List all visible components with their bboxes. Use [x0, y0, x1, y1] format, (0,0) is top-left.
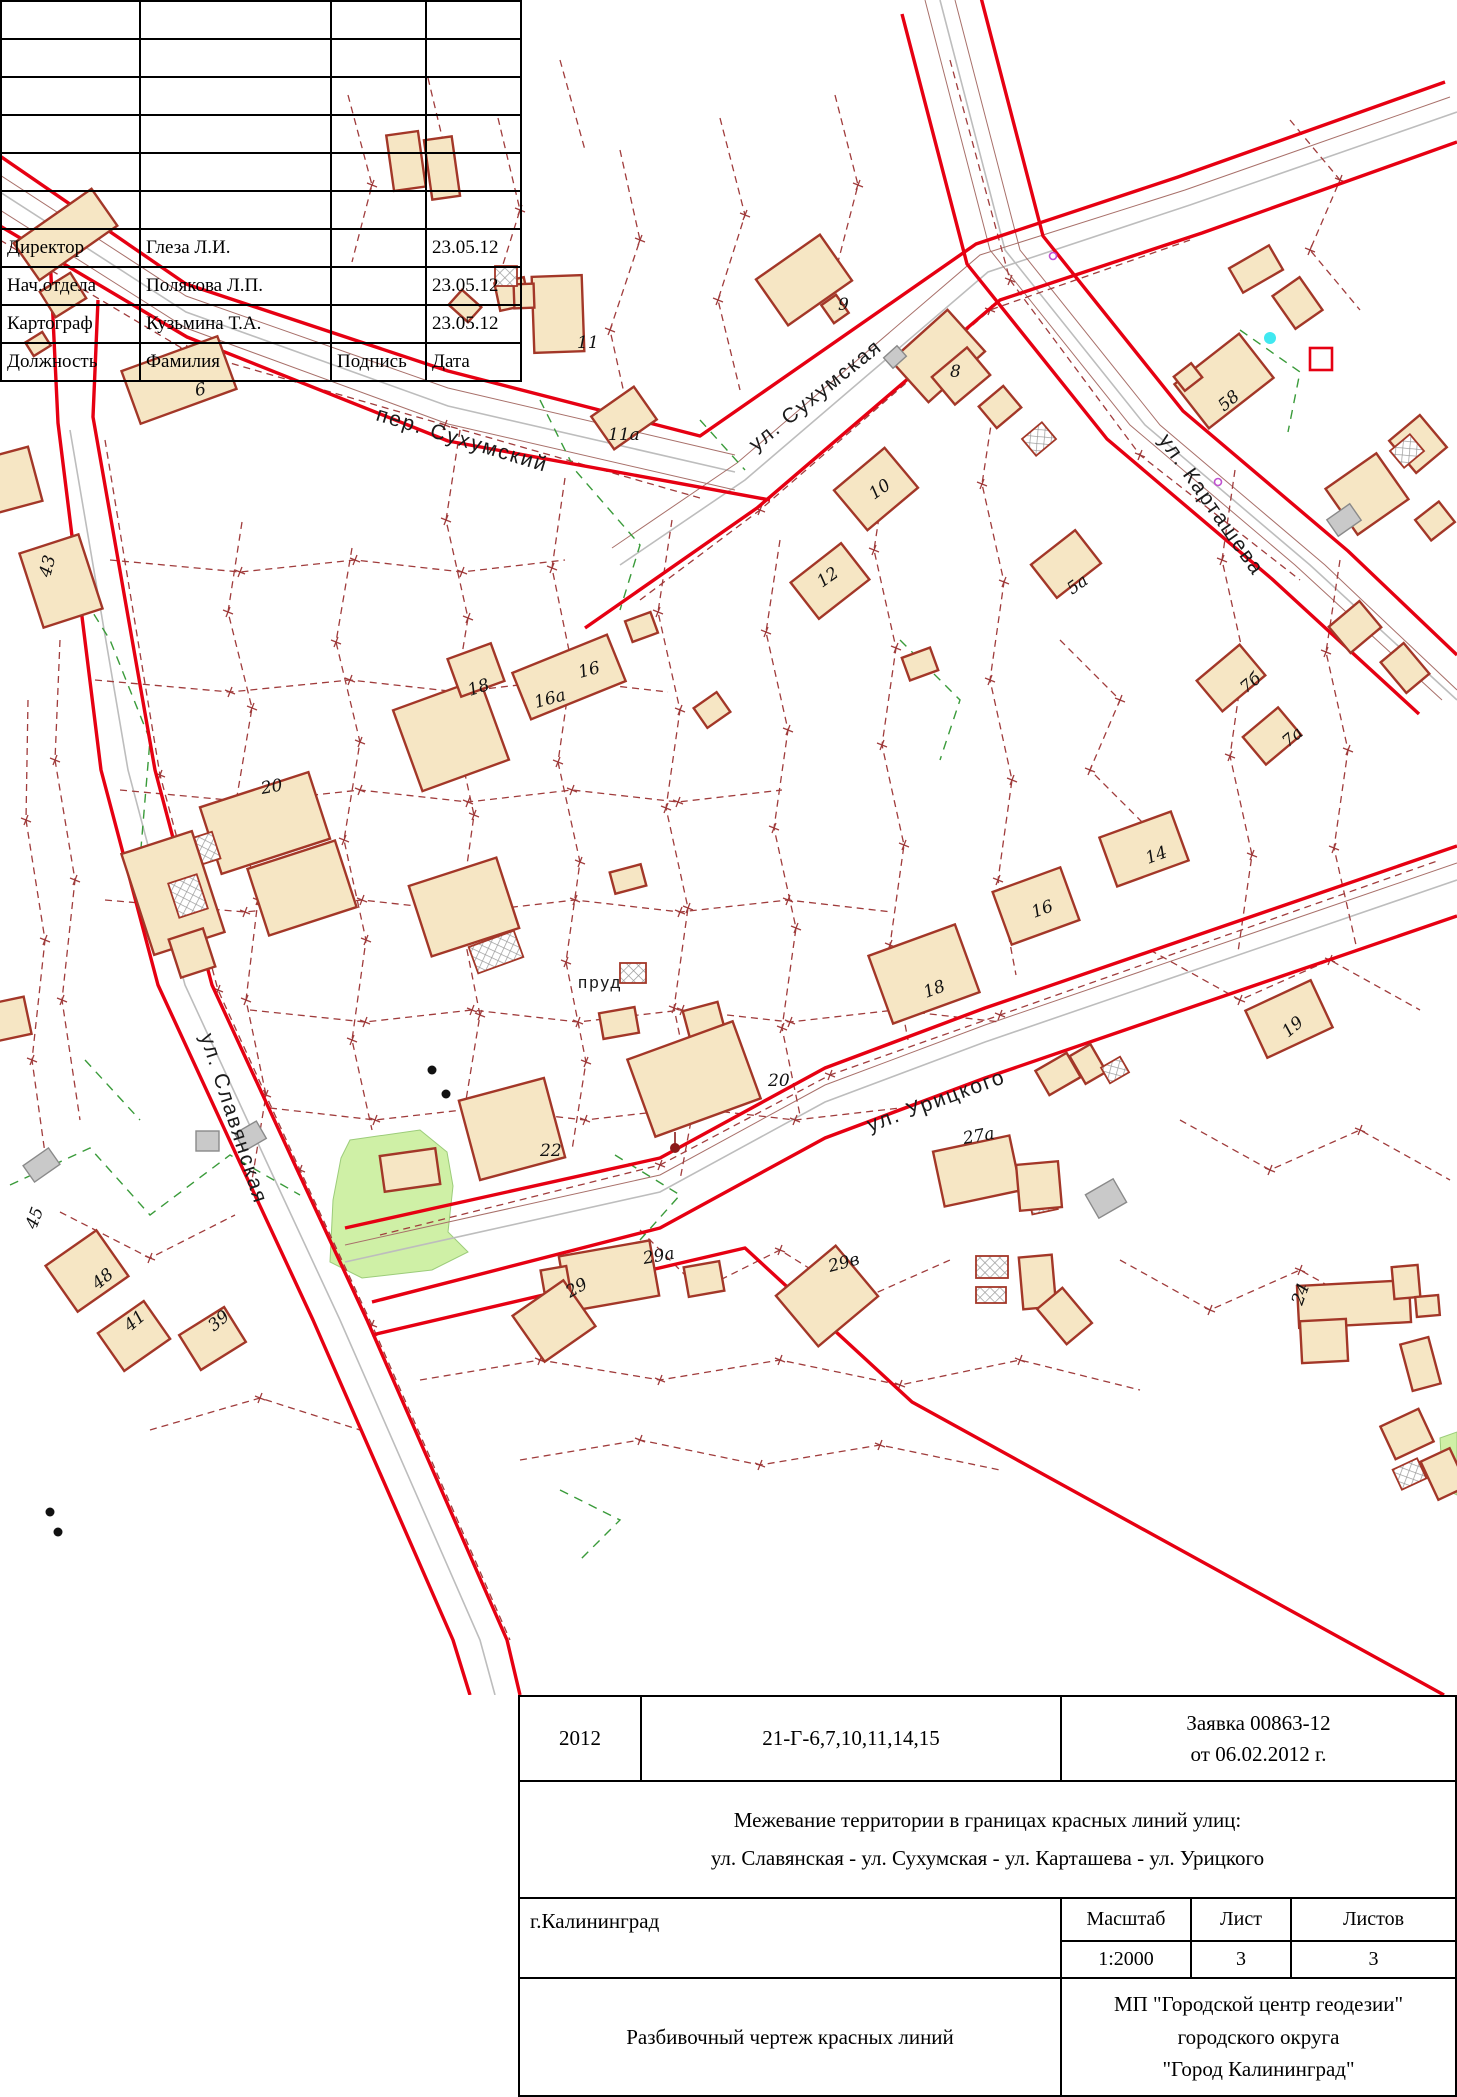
- building: [976, 1287, 1006, 1303]
- building-number: 20: [767, 1071, 790, 1091]
- signature-table: ДиректорГлеза Л.И.23.05.12Нач.отделаПоля…: [0, 0, 522, 382]
- building: [1085, 1179, 1126, 1218]
- building: [976, 1256, 1008, 1278]
- date-cell: Дата: [426, 343, 521, 381]
- building: [1300, 1319, 1348, 1363]
- building: [0, 997, 32, 1042]
- role-cell: [1, 153, 140, 191]
- building: [627, 1021, 760, 1136]
- sheet-label: Лист: [1220, 1908, 1262, 1931]
- date-cell: 23.05.12: [426, 267, 521, 305]
- date-cell: [426, 191, 521, 229]
- role-cell: [1, 39, 140, 77]
- street-label: ул. Славянская: [195, 1030, 272, 1207]
- building: [393, 679, 509, 791]
- role-cell: Директор: [1, 229, 140, 267]
- building: [625, 612, 658, 642]
- building: [380, 1148, 440, 1191]
- building: [459, 1078, 565, 1180]
- city-value: г.Калининград: [530, 1909, 659, 1933]
- org-line3: "Город Калининград": [1162, 2053, 1354, 2086]
- role-cell: [1, 77, 140, 115]
- building: [1101, 1057, 1129, 1084]
- sheet-code-cell: 21-Г-6,7,10,11,14,15: [640, 1695, 1062, 1782]
- building: [902, 648, 938, 681]
- building-number: 45: [22, 1205, 49, 1233]
- role-cell: Нач.отдела: [1, 267, 140, 305]
- name-cell: Полякова Л.П.: [140, 267, 331, 305]
- building: [1421, 1448, 1457, 1500]
- sheet-value-cell: 3: [1190, 1940, 1292, 1979]
- request-cell: Заявка 00863-12 от 06.02.2012 г.: [1060, 1695, 1457, 1782]
- sheets-label: Листов: [1343, 1908, 1404, 1931]
- building: [684, 1261, 725, 1297]
- building: [0, 447, 42, 514]
- sign-cell: [331, 305, 426, 343]
- building: [46, 1230, 129, 1311]
- project-title-line1: Межевание территории в границах красных …: [734, 1802, 1242, 1840]
- building: [1229, 245, 1283, 292]
- sign-cell: Подпись: [331, 343, 426, 381]
- scale-value: 1:2000: [1098, 1948, 1154, 1971]
- name-cell: [140, 1, 331, 39]
- city-cell: г.Калининград: [518, 1897, 1062, 1979]
- name-cell: Глеза Л.И.: [140, 229, 331, 267]
- name-cell: [140, 153, 331, 191]
- signature-row: [1, 1, 521, 39]
- name-cell: Кузьмина Т.А.: [140, 305, 331, 343]
- street-label: пер. Сухумский: [374, 403, 551, 477]
- building: [1380, 1409, 1433, 1459]
- role-cell: Картограф: [1, 305, 140, 343]
- signature-table-wrap: ДиректорГлеза Л.И.23.05.12Нач.отделаПоля…: [0, 0, 522, 382]
- building: [599, 1007, 639, 1039]
- date-cell: [426, 77, 521, 115]
- building-number: 11: [577, 333, 599, 353]
- request-line1: Заявка 00863-12: [1186, 1708, 1330, 1738]
- sheet-value: 3: [1236, 1948, 1246, 1971]
- date-cell: 23.05.12: [426, 229, 521, 267]
- scale-label: Масштаб: [1087, 1908, 1166, 1931]
- street-label: ул. Карташева: [1154, 430, 1269, 580]
- sign-cell: [331, 153, 426, 191]
- org-line2: городского округа: [1178, 2021, 1340, 2054]
- park-area: [330, 1130, 1457, 1495]
- building-number: 8: [950, 362, 961, 382]
- organization-cell: МП "Городской центр геодезии" городского…: [1060, 1977, 1457, 2097]
- sign-cell: [331, 191, 426, 229]
- building: [1273, 277, 1323, 329]
- year-value: 2012: [559, 1726, 601, 1751]
- building-number: 22: [539, 1141, 562, 1161]
- drawing-sheet: пер. Сухумскийул. Сухумскаяул. Карташева…: [0, 0, 1457, 2097]
- sign-cell: [331, 115, 426, 153]
- building-number: 9: [838, 295, 849, 315]
- building: [979, 386, 1022, 428]
- building-number: 11а: [608, 425, 640, 445]
- name-cell: [140, 39, 331, 77]
- scale-label-cell: Масштаб: [1060, 1897, 1192, 1942]
- sheets-label-cell: Листов: [1290, 1897, 1457, 1942]
- building: [694, 692, 731, 728]
- sign-cell: [331, 267, 426, 305]
- role-cell: [1, 115, 140, 153]
- date-cell: [426, 115, 521, 153]
- street-label: ул. Сухумская: [745, 335, 887, 456]
- building: [620, 963, 646, 983]
- signature-row: ДиректорГлеза Л.И.23.05.12: [1, 229, 521, 267]
- building: [1310, 348, 1332, 370]
- sheet-label-cell: Лист: [1190, 1897, 1292, 1942]
- building: [868, 924, 979, 1023]
- building: [1392, 1265, 1421, 1299]
- project-title-cell: Межевание территории в границах красных …: [518, 1780, 1457, 1899]
- name-cell: [140, 115, 331, 153]
- name-cell: [140, 191, 331, 229]
- name-cell: [140, 77, 331, 115]
- signature-row: [1, 77, 521, 115]
- building: [610, 864, 647, 894]
- drawing-title-cell: Разбивочный чертеж красных линий: [518, 1977, 1062, 2097]
- building: [1415, 1295, 1440, 1317]
- building-number: 20: [258, 775, 284, 799]
- building: [196, 1131, 219, 1151]
- signature-row: [1, 39, 521, 77]
- street-label: пруд: [578, 973, 622, 992]
- project-title-line2: ул. Славянская - ул. Сухумская - ул. Кар…: [711, 1840, 1264, 1878]
- date-cell: [426, 39, 521, 77]
- sheet-code-value: 21-Г-6,7,10,11,14,15: [762, 1726, 940, 1751]
- signature-row: [1, 153, 521, 191]
- building: [1400, 1337, 1440, 1391]
- sign-cell: [331, 77, 426, 115]
- building: [1329, 601, 1381, 653]
- sign-cell: [331, 229, 426, 267]
- sheets-value-cell: 3: [1290, 1940, 1457, 1979]
- request-line2: от 06.02.2012 г.: [1191, 1739, 1327, 1769]
- date-cell: [426, 1, 521, 39]
- role-cell: [1, 191, 140, 229]
- signature-row: Нач.отделаПолякова Л.П.23.05.12: [1, 267, 521, 305]
- name-cell: Фамилия: [140, 343, 331, 381]
- year-cell: 2012: [518, 1695, 642, 1782]
- signature-row: ДолжностьФамилияПодписьДата: [1, 343, 521, 381]
- sign-cell: [331, 39, 426, 77]
- role-cell: Должность: [1, 343, 140, 381]
- drawing-title: Разбивочный чертеж красных линий: [626, 2025, 954, 2050]
- date-cell: 23.05.12: [426, 305, 521, 343]
- building: [1415, 502, 1455, 541]
- date-cell: [426, 153, 521, 191]
- org-line1: МП "Городской центр геодезии": [1114, 1988, 1403, 2021]
- building: [1016, 1161, 1062, 1210]
- scale-value-cell: 1:2000: [1060, 1940, 1192, 1979]
- signature-row: [1, 191, 521, 229]
- sheets-value: 3: [1369, 1948, 1379, 1971]
- role-cell: [1, 1, 140, 39]
- building: [1022, 422, 1056, 456]
- sign-cell: [331, 1, 426, 39]
- signature-row: [1, 115, 521, 153]
- signature-row: КартографКузьмина Т.А.23.05.12: [1, 305, 521, 343]
